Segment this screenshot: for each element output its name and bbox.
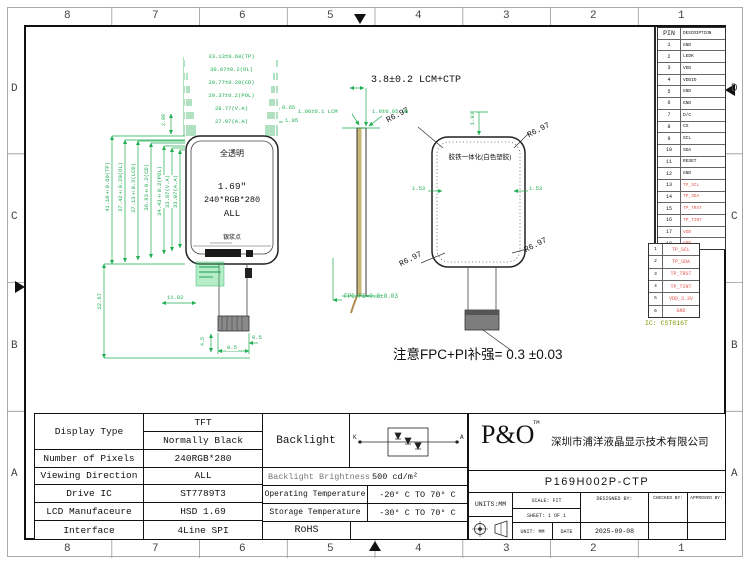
front-view-outline: [186, 136, 278, 331]
dim-total-thickness: 3.8±0.2 LCM+CTP: [371, 76, 461, 86]
dim-lcm-thickness: 1.06±0.1 LCM: [297, 109, 339, 115]
dim-stiffener: 11.82: [166, 295, 185, 301]
approved-by-label: APPROVED BY:: [688, 493, 725, 523]
dim-back-left: 1.53: [411, 186, 426, 192]
led-circuit-symbol: K A: [350, 415, 467, 467]
brightness-label: Backlight Brightness: [268, 472, 370, 482]
company-name: 深圳市浦洋液晶显示技术有限公司: [551, 437, 709, 448]
zone-col-4-bottom: 4: [415, 543, 422, 555]
zone-row-b-right: B: [731, 340, 738, 352]
rohs-row: RoHS: [263, 522, 467, 539]
part-number: P169H002P-CTP: [469, 471, 725, 493]
drawing-sheet: 8 7 6 5 4 3 2 1 8 7 6 5 4 3 2 1 D C B A …: [0, 0, 750, 565]
environment-table: Backlight K A Backlight Brigh: [263, 413, 468, 540]
zone-col-4-top: 4: [415, 10, 422, 22]
title-logo-row: P&O TM 深圳市浦洋液晶显示技术有限公司: [469, 414, 725, 471]
pin-row-5: 5GND: [658, 86, 725, 98]
pin-row-9: 9SCL: [658, 133, 725, 145]
storage-temp-row: Storage Temperature -30° C TO 70° C: [263, 504, 467, 522]
tp-row-6: 6GND: [649, 306, 699, 317]
designed-by-label: DESIGNED BY:: [581, 493, 648, 523]
pin-row-8: 8CS: [658, 122, 725, 134]
units-label: UNITS:MM: [469, 493, 512, 517]
spec-viewing-value: ALL: [144, 468, 262, 486]
dim-top-va: 28.77(V.A): [184, 106, 279, 112]
spec-interface-label: Interface: [35, 521, 144, 539]
zone-col-1-bottom: 1: [678, 543, 685, 555]
zone-row-b-left: B: [11, 340, 18, 352]
pin-description-table: PINDESCRIPTION 1GND 2LEDK 3VDD 4VDDIO 5G…: [657, 27, 726, 250]
zone-col-1-top: 1: [678, 10, 685, 22]
zone-col-5-bottom: 5: [327, 543, 334, 555]
spec-table: Display Type TFT Normally Black Number o…: [34, 413, 263, 540]
touch-ic-label: IC: CST816T: [645, 321, 688, 328]
zone-col-8-top: 8: [64, 10, 71, 22]
front-view-stiffener-highlight: [196, 262, 224, 286]
dim-left-cd: 36.83±0.2(CD): [143, 164, 151, 211]
back-view-center-label: 胶铁一体化(白色塑胶): [440, 155, 520, 162]
zone-row-d-right: D: [731, 83, 738, 95]
spec-display-type-value-2: Normally Black: [144, 432, 262, 450]
sheet-label: SHEET: 1 OF 1: [513, 509, 580, 523]
dim-left-aa: 33.07(A.A): [172, 175, 180, 208]
fpc-note: 注意FPC+PI补强= 0.3 ±0.03: [393, 348, 562, 362]
dim-top-pol: 29.37±0.2(POL): [184, 93, 279, 99]
operating-temp-label: Operating Temperature: [263, 486, 368, 503]
spec-interface-value: 4Line SPI: [144, 521, 262, 539]
backlight-k-label: K: [353, 434, 357, 441]
storage-temp-value: -30° C TO 70° C: [368, 504, 467, 521]
dim-left-pol: 34.43±0.2(POL): [156, 166, 164, 216]
projection-symbol: [469, 517, 512, 540]
pin-row-17: 17VDD: [658, 227, 725, 239]
tp-row-4: 4TP_TINT: [649, 281, 699, 293]
dim-right-065: 0.65: [281, 105, 296, 111]
zone-row-c-right: C: [731, 211, 738, 223]
zone-col-2-top: 2: [590, 10, 597, 22]
pin-row-4: 4VDDIO: [658, 75, 725, 87]
zone-col-8-bottom: 8: [64, 543, 71, 555]
operating-temp-value: -20° C TO 70° C: [368, 486, 467, 503]
pin-row-14: 14TP_SDA: [658, 192, 725, 204]
zone-col-6-bottom: 6: [239, 543, 246, 555]
pin-row-12: 12GND: [658, 168, 725, 180]
date-value: 2025-09-08: [581, 523, 648, 540]
dim-fpc-pi: FPC+PI=0.3±0.03: [344, 294, 398, 300]
front-view-glass-label: 全透明: [197, 150, 267, 158]
backlight-a-label: A: [460, 434, 464, 441]
zone-row-a-right: A: [731, 468, 738, 480]
spec-pixels-value: 240RGB*280: [144, 450, 262, 468]
spec-viewing-label: Viewing Direction: [35, 468, 144, 486]
dim-left-tp: 41.10±0.60(TP): [104, 162, 112, 212]
operating-temp-row: Operating Temperature -20° C TO 70° C: [263, 486, 467, 504]
dim-top-tp: 33.13±0.60(TP): [184, 54, 279, 60]
dim-connector-side: 0.5: [251, 335, 263, 341]
storage-temp-label: Storage Temperature: [263, 504, 368, 521]
title-block: P&O TM 深圳市浦洋液晶显示技术有限公司 P169H002P-CTP UNI…: [468, 413, 726, 540]
tp-row-2: 2TP_SDA: [649, 256, 699, 268]
scale-label: SCALE: FIT: [513, 493, 580, 509]
zone-col-3-top: 3: [503, 10, 510, 22]
spec-display-type-label: Display Type: [35, 414, 144, 450]
dim-left-lcd: 37.13±0.2(LCD): [130, 163, 138, 213]
zone-col-7-bottom: 7: [152, 543, 159, 555]
pin-table-header: PINDESCRIPTION: [658, 28, 725, 40]
dim-top-ol: 30.07±0.2(OL): [184, 67, 279, 73]
company-logo: P&O: [481, 422, 534, 448]
pin-row-13: 13TP_SCL: [658, 180, 725, 192]
zone-row-c-left: C: [11, 211, 18, 223]
pin-row-11: 11RESET: [658, 157, 725, 169]
pin-row-16: 16TP_TINT: [658, 215, 725, 227]
pin-row-2: 2LEDK: [658, 51, 725, 63]
spec-manufacturer-value: HSD 1.69: [144, 503, 262, 521]
logo-tm-mark: TM: [533, 420, 540, 426]
date-label: DATE: [553, 523, 580, 540]
dim-connector-width: 8.5: [226, 345, 238, 351]
front-view-size-label: 1.69″: [197, 182, 267, 192]
front-view-viewing-label: ALL: [197, 210, 267, 219]
dim-left-ol: 37.42±0.20(OL): [117, 162, 125, 212]
checked-by-label: CHECKED BY:: [649, 493, 687, 523]
pin-row-3: 3VDD: [658, 63, 725, 75]
pin-row-6: 6GND: [658, 98, 725, 110]
pin-row-7: 7D/C: [658, 110, 725, 122]
backlight-circuit-cell: K A: [350, 414, 467, 467]
tp-row-3: 3TP_TRST: [649, 269, 699, 281]
rohs-label: RoHS: [263, 522, 351, 539]
pin-row-1: 1GND: [658, 40, 725, 52]
tp-row-1: 1TP_SCL: [649, 244, 699, 256]
zone-row-d-left: D: [11, 83, 18, 95]
back-view-outline: [432, 137, 525, 330]
tp-row-5: 5VDD_3.3V: [649, 293, 699, 305]
dim-top-aa: 27.97(A.A): [184, 119, 279, 125]
spec-drive-ic-label: Drive IC: [35, 485, 144, 503]
spec-drive-ic-value: ST7789T3: [144, 485, 262, 503]
dim-back-right: 1.53: [528, 186, 543, 192]
first-angle-projection-icon: [471, 519, 511, 539]
front-view-silver-dot-label: 银浆点: [207, 235, 257, 241]
zone-col-2-bottom: 2: [590, 543, 597, 555]
front-view-resolution-label: 240*RGB*280: [190, 196, 274, 205]
dim-connector-height: 4.5: [201, 337, 206, 346]
dim-top-cd: 29.77±0.20(CD): [184, 80, 279, 86]
zone-row-a-left: A: [11, 468, 18, 480]
side-view-outline: [351, 128, 366, 313]
tp-connector-table: 1TP_SCL 2TP_SDA 3TP_TRST 4TP_TINT 5VDD_3…: [648, 243, 700, 318]
spec-pixels-label: Number of Pixels: [35, 450, 144, 468]
zone-col-5-top: 5: [327, 10, 334, 22]
zone-col-6-top: 6: [239, 10, 246, 22]
brightness-row: Backlight Brightness 500 cd/m²: [263, 468, 467, 486]
unit-label: UNIT: MM: [513, 523, 553, 540]
zone-col-7-top: 7: [152, 10, 159, 22]
dim-left-va: 33.87(V.A): [164, 175, 172, 208]
dim-fpc-length: 22.67: [96, 293, 104, 310]
brightness-value: 500 cd/m²: [372, 472, 418, 482]
zone-col-3-bottom: 3: [503, 543, 510, 555]
dim-back-top: 1.93: [470, 112, 476, 125]
spec-manufacturer-label: LCD Manufaceure: [35, 503, 144, 521]
backlight-label: Backlight: [263, 414, 350, 467]
pin-row-15: 15TP_TRST: [658, 203, 725, 215]
dim-top-bezel: 2.98: [162, 114, 167, 126]
backlight-row: Backlight K A: [263, 414, 467, 468]
spec-display-type-value-1: TFT: [144, 414, 262, 432]
dim-right-105: 1.05: [284, 118, 299, 124]
pin-row-10: 10SDA: [658, 145, 725, 157]
